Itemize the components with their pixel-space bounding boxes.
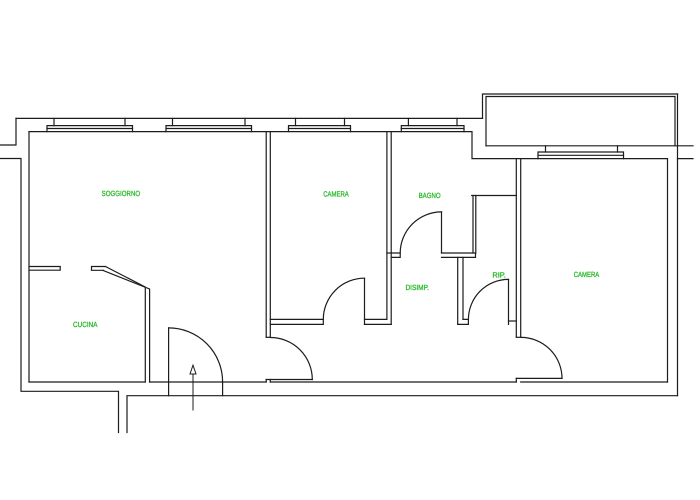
svg-text:DISIMP.: DISIMP. xyxy=(405,283,429,292)
svg-text:CAMERA: CAMERA xyxy=(323,190,349,199)
svg-text:RIP.: RIP. xyxy=(492,271,506,280)
svg-text:BAGNO: BAGNO xyxy=(419,191,441,200)
svg-text:CAMERA: CAMERA xyxy=(574,270,600,279)
svg-text:SOGGIORNO: SOGGIORNO xyxy=(102,189,141,198)
svg-text:CUCINA: CUCINA xyxy=(73,320,98,329)
